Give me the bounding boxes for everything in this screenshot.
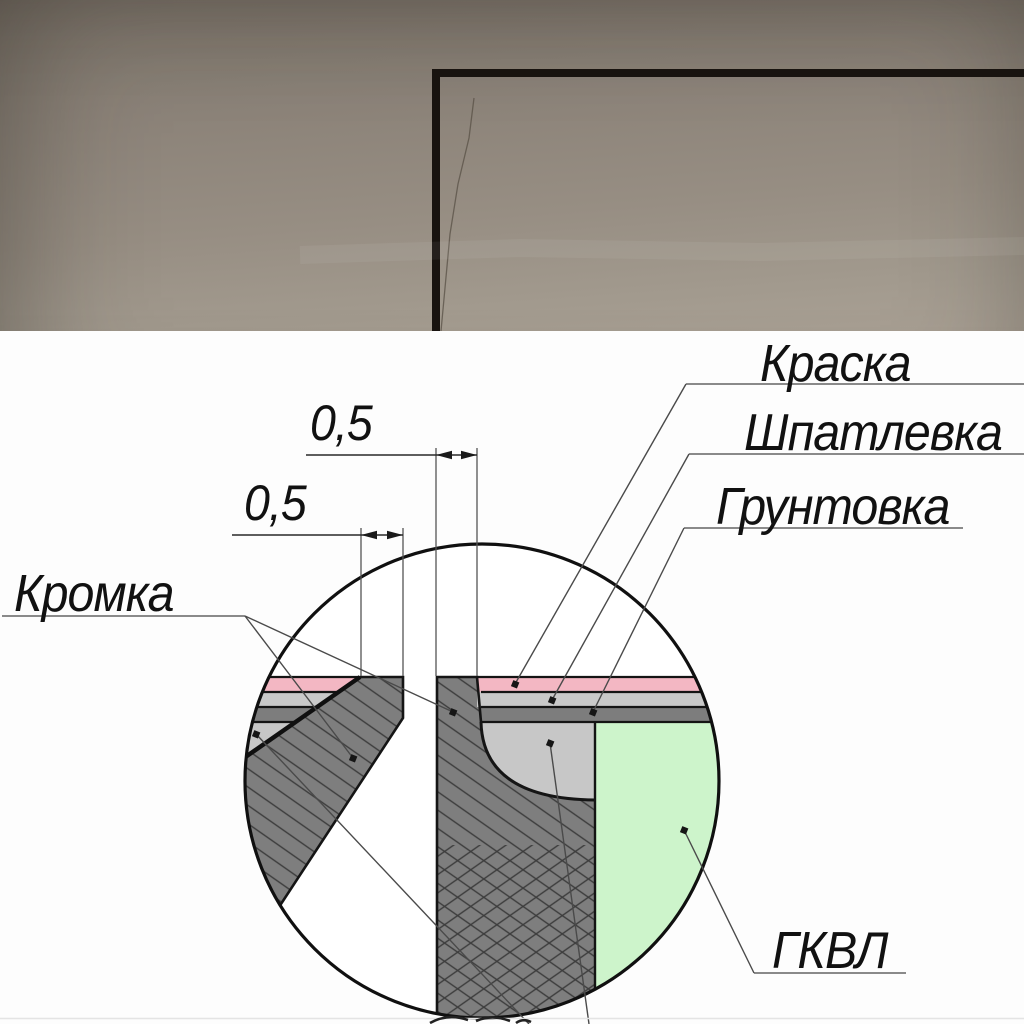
callout-edge-label: Кромка	[14, 568, 174, 620]
callout-paint-label: Краска	[760, 338, 911, 390]
primer-layer-right	[479, 707, 718, 722]
callout-board-label: ГКВЛ	[772, 925, 887, 977]
dimension-top-gap: 0,5	[310, 398, 372, 448]
callout-filler-label: Шпатлевка	[744, 407, 1002, 459]
screenshot-root: 0,5 0,5 Краска Шпатлевка Грунтовка Кромк…	[0, 0, 1024, 1024]
dimension-left-gap: 0,5	[244, 478, 306, 528]
callout-primer-label: Грунтовка	[716, 481, 950, 533]
